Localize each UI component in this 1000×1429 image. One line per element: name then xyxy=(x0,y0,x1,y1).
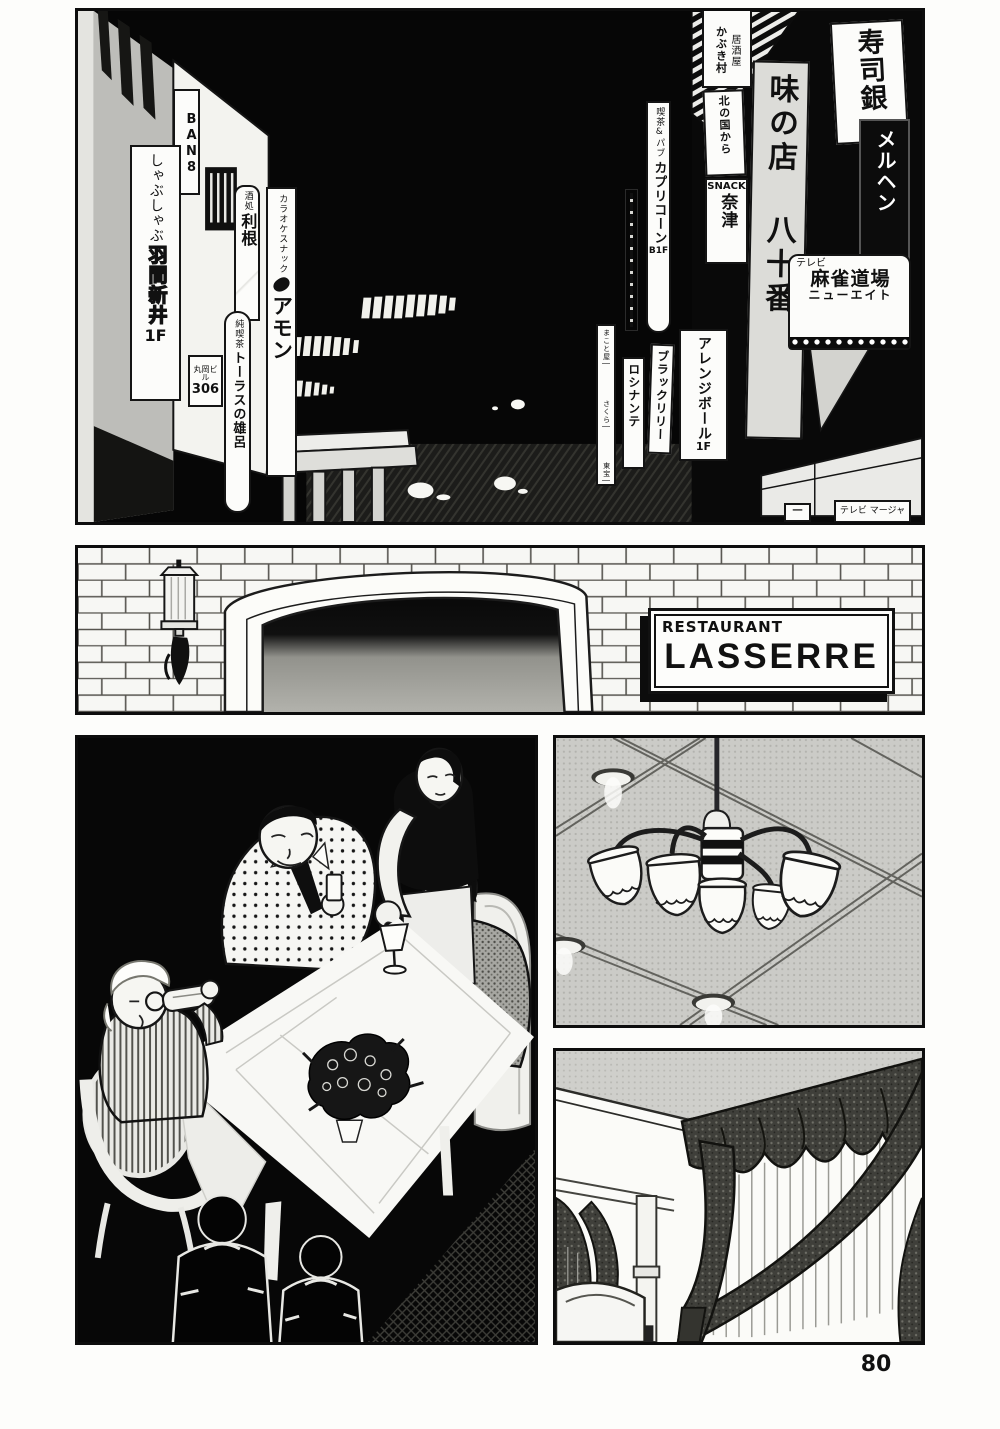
sign-karaoke-amon: カラオケスナック アモン xyxy=(266,187,297,477)
sign-light-bulbs xyxy=(790,337,909,348)
wine-glass-hand xyxy=(327,875,342,901)
sign-rocinante: ロシナンテ xyxy=(622,357,645,469)
restaurant-sign: RESTAURANT LASSERRE xyxy=(648,608,895,694)
page-number: 80 xyxy=(846,1352,906,1377)
restaurant-sign-inner: RESTAURANT LASSERRE xyxy=(654,614,889,688)
sign-tv-mahjan: テレビ マージャ xyxy=(834,500,911,523)
sign-black-lily: ブラックリリー xyxy=(647,344,675,455)
sign-snack-natsu: SNACK 奈津 xyxy=(705,178,748,264)
panel-restaurant-exterior: RESTAURANT LASSERRE xyxy=(75,545,925,715)
restaurant-name: LASSERRE xyxy=(662,637,881,677)
sign-izakaya-kabukimura: かぶき村 居酒屋 xyxy=(702,11,752,88)
sign-kitanokunikara: 北の国から xyxy=(703,89,747,176)
sign-arrange-ball: アレンジボール 1F xyxy=(679,329,728,461)
sign-building-306: 丸岡ビル 306 xyxy=(188,355,223,407)
curtains-art xyxy=(556,1051,922,1342)
doorway xyxy=(263,598,565,712)
sign-makotoya: まこと屋 さくら 東宝 xyxy=(596,324,616,486)
sign-capricorn: 喫茶&パブ カプリコーン B1F xyxy=(646,101,671,333)
panel-street-night: BAN8 しゃぶしゃぶ 羽間新井 1F 酒処 利根 純喫茶 トーラスの雄呂 丸岡… xyxy=(75,8,925,525)
curtain-tie xyxy=(678,1308,706,1342)
sign-mahjong-dojo: テレビ 麻雀道場 ニューエイト xyxy=(788,254,911,350)
panel-curtains xyxy=(553,1048,925,1345)
sign-tone: 酒処 利根 xyxy=(234,185,260,321)
ceiling-art xyxy=(556,738,922,1025)
sign-small-dark xyxy=(625,189,638,331)
sign-small-dash: 一 xyxy=(784,503,811,522)
sign-junkissa-taurus: 純喫茶 トーラスの雄呂 xyxy=(224,311,251,513)
dinner-scene-art xyxy=(78,738,535,1342)
sign-meruhen: メルヘン xyxy=(859,119,910,276)
amon-logo-icon xyxy=(271,276,291,294)
restaurant-label: RESTAURANT xyxy=(662,618,881,636)
panel-ceiling-chandelier xyxy=(553,735,925,1028)
panel-dinner-table xyxy=(75,735,538,1345)
sign-shabushabu: しゃぶしゃぶ 羽間新井 1F xyxy=(130,145,181,401)
manga-page: BAN8 しゃぶしゃぶ 羽間新井 1F 酒処 利根 純喫茶 トーラスの雄呂 丸岡… xyxy=(0,0,1000,1429)
sign-ajinomise-hachijuban: 味の店 八十番 xyxy=(745,60,810,439)
chair-back xyxy=(556,1283,645,1342)
